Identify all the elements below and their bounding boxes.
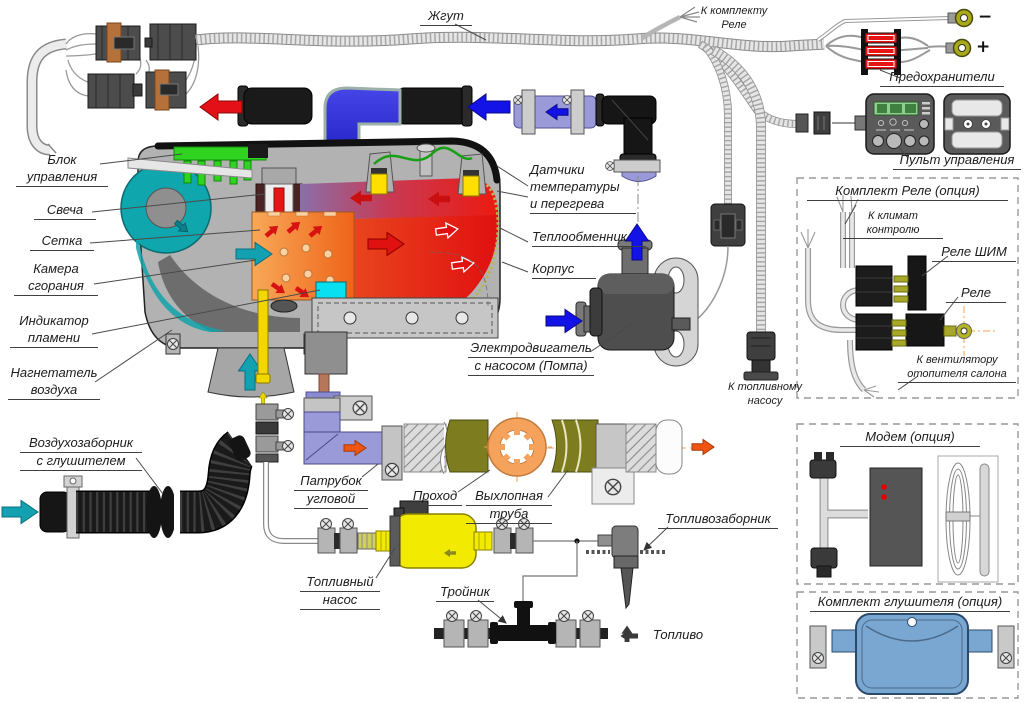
fuel-tee — [434, 601, 608, 647]
label-to-fan: К вентиляторуотопителя салона — [898, 354, 1016, 383]
label-fuses: Предохранители — [880, 69, 1004, 87]
label-harness: Жгут — [420, 8, 472, 26]
fuses — [865, 33, 897, 69]
ecu-connectors — [88, 23, 196, 110]
fuel-pump-harness-connector — [744, 332, 778, 380]
label-passage: Проход — [408, 488, 462, 506]
coolant-hose — [514, 90, 596, 134]
label-control-panel: Пульт управления — [893, 152, 1021, 170]
control-panel-back-cover — [944, 94, 1010, 154]
label-fuel-pickup: Топливозаборник — [658, 511, 778, 529]
exhaust-passage-flange — [484, 412, 552, 482]
label-sensors: Датчикитемпературыи перегрева — [530, 162, 636, 214]
label-exhaust-pipe: Выхлопнаятруба — [466, 488, 552, 524]
label-to-relay-kit: К комплектуРеле — [684, 5, 784, 33]
label-heat-exchanger: Теплообменник — [532, 229, 646, 247]
label-combustion-chamber: Камерасгорания — [14, 261, 98, 296]
label-fuel: Топливо — [648, 627, 708, 644]
label-mesh: Сетка — [30, 233, 94, 251]
control-panel — [796, 94, 1010, 154]
fuse-block — [818, 10, 973, 76]
label-relay: Реле — [946, 285, 1006, 303]
label-glow-plug: Свеча — [34, 202, 96, 220]
label-control-unit: Блокуправления — [16, 152, 108, 187]
antenna-cable — [938, 456, 998, 582]
ring-terminal-plus — [946, 40, 971, 57]
label-air-intake: Воздухозаборникс глушителем — [20, 435, 142, 471]
label-elbow-pipe: Патрубокугловой — [294, 473, 368, 509]
label-pwm-relay: Реле ШИМ — [932, 244, 1016, 262]
label-relay-kit-title: Комплект Реле (опция) — [807, 183, 1008, 201]
label-modem-title: Модем (опция) — [840, 429, 980, 447]
label-to-fuel-pump: К топливномунасосу — [722, 381, 808, 409]
label-tee: Тройник — [436, 584, 494, 602]
modem-box — [797, 424, 1018, 584]
label-plus: + — [976, 37, 990, 57]
label-muffler-kit-title: Комплект глушителя (опция) — [810, 594, 1010, 612]
label-minus: − — [978, 7, 992, 27]
label-fuel-pump: Топливныйнасос — [300, 574, 380, 610]
heater-assembly — [121, 86, 510, 410]
label-to-climate: К климатконтролю — [843, 210, 943, 239]
ring-terminal-minus — [948, 10, 973, 27]
label-flame-indicator: Индикаторпламени — [10, 313, 98, 348]
label-motor-pump: Электродвигательс насосом (Помпа) — [468, 340, 594, 376]
label-housing: Корпус — [532, 261, 596, 279]
modem-unit — [870, 468, 922, 566]
flame-indicator-window — [316, 282, 346, 299]
label-air-blower: Нагнетательвоздуха — [8, 365, 100, 400]
heater-installation-diagram: Жгут К комплектуРеле − + Предохранители … — [0, 0, 1024, 703]
